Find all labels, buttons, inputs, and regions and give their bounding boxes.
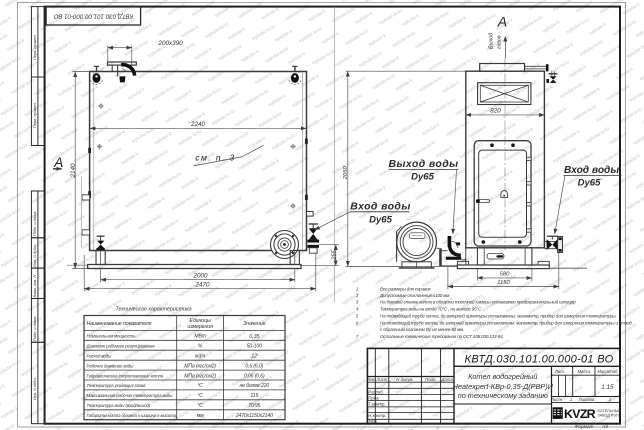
svg-text:Dy65: Dy65 <box>578 178 601 189</box>
svg-text:2000: 2000 <box>192 272 208 279</box>
svg-text:Выход воды: Выход воды <box>389 158 459 170</box>
svg-text:ЗАВОД РЭП: ЗАВОД РЭП <box>598 414 619 418</box>
svg-text:Вход воды: Вход воды <box>350 201 410 213</box>
svg-text:Т.контр.: Т.контр. <box>368 402 385 407</box>
svg-text:Допустимые отклонения ±100 мм: Допустимые отклонения ±100 мм. <box>379 293 450 298</box>
svg-text:255: 255 <box>331 249 337 260</box>
svg-text:Выход: Выход <box>488 33 494 49</box>
svg-text:1:15: 1:15 <box>601 384 614 391</box>
svg-text:2470: 2470 <box>194 281 210 288</box>
svg-text:Формат: Формат <box>575 424 594 430</box>
svg-text:Лит.: Лит. <box>554 369 565 374</box>
svg-text:Dy65: Dy65 <box>411 172 434 183</box>
svg-text:Дата: Дата <box>441 377 454 382</box>
svg-text:1150: 1150 <box>497 280 510 286</box>
svg-text:Вход воды: Вход воды <box>564 165 619 176</box>
svg-text:Инв. N дубл.: Инв. N дубл. <box>32 244 37 267</box>
svg-text:по техническому заданию: по техническому заданию <box>458 391 549 400</box>
svg-text:KVZR: KVZR <box>564 407 596 421</box>
svg-text:0,6 (6,0): 0,6 (6,0) <box>245 363 263 369</box>
svg-text:А3: А3 <box>601 424 608 430</box>
svg-text:Остальные технические требован: Остальные технические требования по ОСТ … <box>380 334 504 339</box>
svg-text:Значение: Значение <box>243 321 265 327</box>
svg-text:На подводящей трубе котла, до: На подводящей трубе котла, до запорной а… <box>380 313 617 319</box>
svg-text:Н.контр.: Н.контр. <box>368 413 386 418</box>
svg-text:%: % <box>198 344 203 350</box>
svg-text:2050: 2050 <box>343 166 349 181</box>
svg-text:580: 580 <box>500 271 511 277</box>
svg-text:А: А <box>497 14 507 30</box>
svg-text:°С: °С <box>197 403 203 409</box>
svg-text:Диапазон рабочего регулировани: Диапазон рабочего регулирования <box>86 344 156 349</box>
svg-text:Масштаб: Масштаб <box>597 369 618 374</box>
svg-text:м3/ч: м3/ч <box>195 354 205 360</box>
svg-text:Рабочее давление воды: Рабочее давление воды <box>87 363 135 368</box>
svg-text:Гидравлическое сопротивление к: Гидравлическое сопротивление котла <box>87 373 164 378</box>
svg-text:газов: газов <box>496 35 502 49</box>
svg-text:Heatexpert-КВр-0,35-Д(РВР)И: Heatexpert-КВр-0,35-Д(РВР)И <box>453 382 554 391</box>
svg-text:Котел водогрейный: Котел водогрейный <box>468 372 537 381</box>
svg-text:не более 220: не более 220 <box>239 383 269 389</box>
svg-text:Подп. и дата: Подп. и дата <box>32 316 37 341</box>
svg-text:А: А <box>53 155 63 170</box>
svg-text:820: 820 <box>490 107 501 114</box>
svg-text:Техническая характеристика: Техническая характеристика <box>115 307 191 313</box>
svg-text:115: 115 <box>250 393 258 399</box>
svg-text:70/95: 70/95 <box>248 403 260 409</box>
svg-text:Габариты котла (длинна х ширин: Габариты котла (длинна х ширина х высота… <box>87 413 178 418</box>
svg-text:с обратным клапаном Dу не мен: с обратным клапаном Dу не менее 50 мм. <box>380 327 464 332</box>
svg-text:МВт: МВт <box>194 334 206 340</box>
svg-text:На отводящей трубе котла, до з: На отводящей трубе котла, до запорной ар… <box>380 320 632 326</box>
svg-text:измерения: измерения <box>187 324 213 330</box>
svg-text:N докум.: N докум. <box>396 377 413 382</box>
svg-text:Взам. инв. N: Взам. инв. N <box>32 275 37 298</box>
svg-text:Масса: Масса <box>578 369 591 374</box>
svg-text:Максимальная рабочая температу: Максимальная рабочая температура воды <box>87 393 174 398</box>
svg-text:КВТД.030.101.00.000-01 ВО: КВТД.030.101.00.000-01 ВО <box>465 354 614 366</box>
svg-text:Все размеры для справок: Все размеры для справок <box>380 286 431 291</box>
svg-text:мм: мм <box>197 413 204 419</box>
svg-text:Температура уходящих газов: Температура уходящих газов <box>87 383 147 388</box>
svg-text:Утв.: Утв. <box>368 419 378 424</box>
svg-text:Инв. N подл.: Инв. N подл. <box>32 377 37 400</box>
svg-text:Подп. и дата: Подп. и дата <box>32 211 37 236</box>
svg-text:Подп.: Подп. <box>425 377 436 382</box>
svg-text:Температура воды (вход/выход): Температура воды (вход/выход) <box>87 403 151 408</box>
svg-text:На боковой стенке котла в обла: На боковой стенке котла в области топочн… <box>380 299 576 305</box>
svg-text:Расход воды: Расход воды <box>87 354 113 359</box>
svg-text:Лист: Лист <box>375 377 387 382</box>
svg-text:КВТД.030.101.00.000-01 ВО: КВТД.030.101.00.000-01 ВО <box>53 13 133 20</box>
svg-text:200х390: 200х390 <box>158 40 184 47</box>
svg-text:12: 12 <box>251 354 258 360</box>
svg-text:2140: 2140 <box>70 163 77 179</box>
svg-text:50-100: 50-100 <box>247 344 262 350</box>
svg-text:Листов: Листов <box>578 397 595 402</box>
svg-text:2470х1150х2140: 2470х1150х2140 <box>235 413 273 419</box>
svg-text:0,35: 0,35 <box>249 334 260 340</box>
svg-text:Температура воды на входе 70°: Температура воды на входе 70°С , на выхо… <box>380 307 483 312</box>
svg-text:МПа (кгс/см2): МПа (кгс/см2) <box>184 373 216 379</box>
svg-text:Лист: Лист <box>550 397 562 402</box>
svg-text:0,06 (0,6): 0,06 (0,6) <box>244 373 265 379</box>
svg-text:°С: °С <box>197 383 203 389</box>
svg-text:Dy65: Dy65 <box>369 215 392 226</box>
svg-text:см. п. 3: см. п. 3 <box>195 153 235 163</box>
svg-text:Пров.: Пров. <box>368 396 379 401</box>
svg-text:2240: 2240 <box>190 121 206 128</box>
svg-text:Номинальная мощность: Номинальная мощность <box>87 334 137 339</box>
svg-text:°С: °С <box>197 393 203 399</box>
svg-text:Изм.: Изм. <box>367 377 376 382</box>
svg-text:Разраб.: Разраб. <box>368 389 384 394</box>
svg-text:Перв. примен.: Перв. примен. <box>32 34 37 60</box>
svg-text:МПа (кгс/см2): МПа (кгс/см2) <box>184 363 216 369</box>
svg-text:Наименование показателя: Наименование показателя <box>87 321 152 327</box>
svg-text:КОТЕЛЬНЫЙ: КОТЕЛЬНЫЙ <box>598 409 621 413</box>
svg-text:Перв. примен.: Перв. примен. <box>32 102 37 128</box>
